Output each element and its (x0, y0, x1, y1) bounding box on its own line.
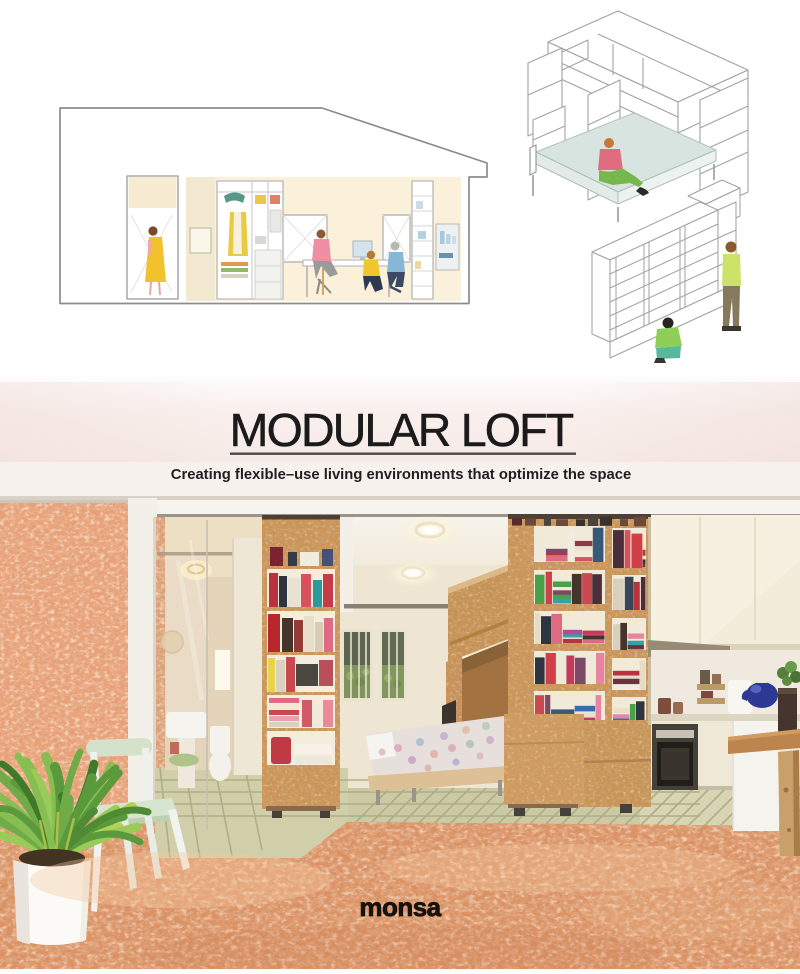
svg-text:MODULAR LOFT: MODULAR LOFT (230, 404, 574, 456)
svg-text:Creating flexible–use living e: Creating flexible–use living environment… (171, 467, 631, 483)
svg-text:monsa: monsa (359, 892, 441, 922)
